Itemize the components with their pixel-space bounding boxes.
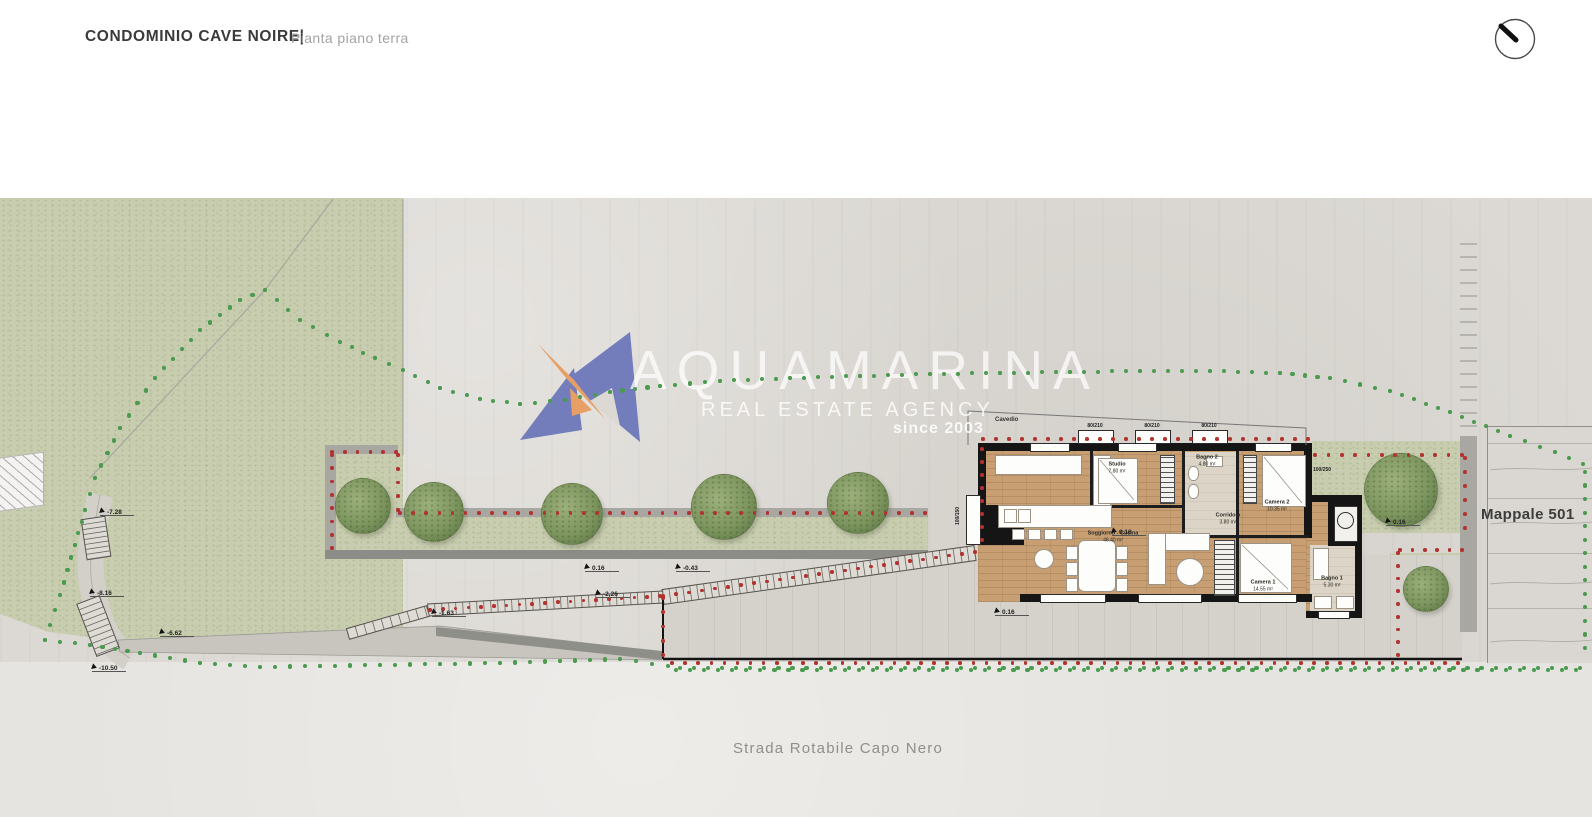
boundary-dot — [1250, 668, 1254, 672]
boundary-dot — [1380, 453, 1384, 457]
boundary-dot — [1312, 661, 1316, 665]
boundary-dot — [1560, 668, 1564, 672]
boundary-dot — [802, 376, 806, 380]
boundary-dot — [1202, 437, 1206, 441]
boundary-dot — [58, 640, 62, 644]
boundary-dot — [1411, 548, 1415, 552]
boundary-dot — [766, 511, 770, 515]
boundary-dot — [543, 659, 547, 663]
boundary-dot — [1461, 668, 1465, 672]
boundary-dot — [980, 486, 984, 490]
boundary-dot — [1583, 538, 1587, 542]
boundary-dot — [1280, 437, 1284, 441]
boundary-dot — [753, 511, 757, 515]
boundary-dot — [477, 511, 481, 515]
boundary-dot — [330, 453, 334, 457]
boundary-dot — [1508, 666, 1512, 670]
room-label: Camera 114.55 m² — [1251, 580, 1276, 593]
boundary-dot — [1111, 437, 1115, 441]
boundary-dot — [980, 473, 984, 477]
boundary-dot — [776, 666, 780, 670]
boundary-dot — [1325, 666, 1329, 670]
boundary-dot — [348, 663, 352, 667]
boundary-dot — [275, 298, 279, 302]
boundary-dot — [900, 373, 904, 377]
boundary-dot — [1479, 666, 1483, 670]
boundary-dot — [330, 506, 334, 510]
boundary-dot — [1279, 668, 1283, 672]
boundary-dot — [573, 658, 577, 662]
boundary-dot — [801, 661, 805, 665]
boundary-dot — [396, 467, 400, 471]
boundary-dot — [1463, 456, 1467, 460]
boundary-dot — [1040, 668, 1044, 672]
boundary-dot — [1447, 668, 1451, 672]
boundary-dot — [127, 413, 131, 417]
boundary-dot — [1001, 666, 1005, 670]
boundary-dot — [1475, 668, 1479, 672]
boundary-dot — [1194, 661, 1198, 665]
boundary-dot — [1536, 666, 1540, 670]
boundary-dot — [208, 320, 212, 324]
boundary-dot — [661, 653, 665, 657]
boundary-dot — [153, 653, 157, 657]
boundary-dot — [1254, 666, 1258, 670]
boundary-dot — [956, 372, 960, 376]
boundary-dot — [843, 668, 847, 672]
boundary-dot — [1463, 498, 1467, 502]
boundary-dot — [1150, 437, 1154, 441]
boundary-dot — [1299, 661, 1303, 665]
boundary-dot — [1396, 589, 1400, 593]
boundary-dot — [1082, 370, 1086, 374]
boundary-dot — [1265, 668, 1269, 672]
boundary-dot — [867, 661, 871, 665]
road-label: Strada Rotabile Capo Nero — [733, 740, 943, 757]
boundary-dot — [650, 662, 654, 666]
elevation-marker: 0.16 — [1386, 518, 1420, 526]
boundary-dot — [330, 546, 334, 550]
boundary-dot — [620, 388, 624, 392]
boundary-dot — [683, 661, 687, 665]
boundary-dot — [1110, 668, 1114, 672]
boundary-dot — [857, 668, 861, 672]
boundary-dot — [1247, 661, 1251, 665]
boundary-dot — [723, 661, 727, 665]
boundary-dot — [739, 583, 743, 587]
boundary-dot — [1443, 661, 1447, 665]
boundary-dot — [921, 558, 925, 562]
boundary-dot — [1522, 666, 1526, 670]
boundary-dot — [818, 511, 822, 515]
boundary-dot — [1456, 661, 1460, 665]
boundary-dot — [1307, 668, 1311, 672]
boundary-dot — [453, 662, 457, 666]
boundary-dot — [1564, 666, 1568, 670]
boundary-dot — [1086, 666, 1090, 670]
boundary-dot — [980, 447, 984, 451]
boundary-dot — [1378, 661, 1382, 665]
boundary-dot — [1396, 564, 1400, 568]
boundary-dot — [1518, 668, 1522, 672]
boundary-dot — [621, 511, 625, 515]
boundary-dot — [673, 383, 677, 387]
boundary-dot — [343, 450, 347, 454]
boundary-dot — [1124, 437, 1128, 441]
boundary-dot — [1460, 548, 1464, 552]
watermark-since: since 2003 — [893, 420, 984, 438]
boundary-dot — [1353, 453, 1357, 457]
boundary-dot — [1315, 375, 1319, 379]
boundary-dot — [1463, 512, 1467, 516]
boundary-dot — [858, 511, 862, 515]
boundary-dot — [923, 511, 927, 515]
boundary-dot — [468, 661, 472, 665]
boundary-dot — [1033, 437, 1037, 441]
boundary-dot — [815, 668, 819, 672]
boundary-dot — [985, 661, 989, 665]
boundary-dot — [112, 438, 116, 442]
boundary-dot — [805, 511, 809, 515]
boundary-dot — [529, 511, 533, 515]
boundary-dot — [687, 511, 691, 515]
boundary-dot — [1116, 661, 1120, 665]
boundary-dot — [381, 450, 385, 454]
window-dimension-tag: 80/210 — [1201, 423, 1216, 429]
boundary-dot — [895, 561, 899, 565]
boundary-dot — [1583, 619, 1587, 623]
boundary-dot — [804, 574, 808, 578]
boundary-dot — [65, 568, 69, 572]
boundary-dot — [330, 493, 334, 497]
boundary-dot — [593, 393, 597, 397]
boundary-dot — [543, 601, 547, 605]
boundary-dot — [972, 661, 976, 665]
boundary-dot — [980, 499, 984, 503]
boundary-dot — [843, 569, 847, 573]
boundary-dot — [1207, 661, 1211, 665]
boundary-dot — [1228, 437, 1232, 441]
elevation-marker: 0.16 — [585, 564, 619, 572]
boundary-dot — [330, 533, 334, 537]
boundary-dot — [871, 668, 875, 672]
boundary-dot — [1583, 592, 1587, 596]
boundary-dot — [1340, 453, 1344, 457]
boundary-dot — [790, 666, 794, 670]
boundary-dot — [189, 338, 193, 342]
boundary-dot — [746, 378, 750, 382]
boundary-dot — [994, 437, 998, 441]
room-label: Studio7.80 m² — [1108, 462, 1125, 475]
boundary-dot — [661, 639, 665, 643]
boundary-dot — [772, 668, 776, 672]
boundary-dot — [1358, 382, 1362, 386]
boundary-dot — [1089, 661, 1093, 665]
boundary-dot — [556, 511, 560, 515]
boundary-dot — [1046, 437, 1050, 441]
elevation-marker: -6.62 — [160, 629, 194, 637]
boundary-dot — [530, 602, 534, 606]
elevation-marker: -0.43 — [676, 564, 710, 572]
boundary-dot — [856, 567, 860, 571]
boundary-dot — [1339, 666, 1343, 670]
boundary-dot — [830, 570, 834, 574]
boundary-dot — [800, 668, 804, 672]
boundary-dot — [661, 610, 665, 614]
boundary-dot — [1012, 371, 1016, 375]
boundary-dot — [411, 511, 415, 515]
boundary-dot — [1098, 437, 1102, 441]
boundary-dot — [369, 450, 373, 454]
boundary-dot — [1365, 661, 1369, 665]
boundary-dot — [62, 580, 66, 584]
boundary-dot — [1007, 437, 1011, 441]
boundary-dot — [396, 481, 400, 485]
boundary-dot — [906, 661, 910, 665]
boundary-dot — [228, 305, 232, 309]
boundary-dot — [503, 511, 507, 515]
boundary-dot — [183, 658, 187, 662]
boundary-dot — [1037, 661, 1041, 665]
boundary-dot — [700, 511, 704, 515]
boundary-dot — [1082, 668, 1086, 672]
boundary-dot — [1583, 632, 1587, 636]
boundary-dot — [438, 511, 442, 515]
boundary-dot — [1100, 666, 1104, 670]
boundary-dot — [792, 511, 796, 515]
boundary-dot — [1269, 666, 1273, 670]
boundary-dot — [645, 595, 649, 599]
boundary-dot — [841, 661, 845, 665]
boundary-dot — [426, 380, 430, 384]
boundary-dot — [1025, 668, 1029, 672]
boundary-dot — [125, 649, 129, 653]
boundary-dot — [819, 666, 823, 670]
boundary-dot — [1222, 668, 1226, 672]
boundary-dot — [603, 657, 607, 661]
boundary-dot — [393, 663, 397, 667]
boundary-dot — [670, 661, 674, 665]
boundary-dot — [479, 605, 483, 609]
boundary-dot — [1550, 666, 1554, 670]
shaft-label: Cavedio — [995, 417, 1018, 423]
boundary-dot — [1351, 661, 1355, 665]
boundary-dot — [910, 511, 914, 515]
boundary-dot — [1234, 661, 1238, 665]
boundary-dot — [1367, 453, 1371, 457]
boundary-dot — [1338, 661, 1342, 665]
boundary-dot — [1306, 437, 1310, 441]
boundary-dot — [99, 463, 103, 467]
boundary-dot — [396, 494, 400, 498]
boundary-dot — [1327, 453, 1331, 457]
boundary-dot — [1068, 668, 1072, 672]
boundary-dot — [688, 381, 692, 385]
boundary-dot — [634, 511, 638, 515]
boundary-dot — [1103, 661, 1107, 665]
boundary-dot — [981, 437, 985, 441]
boundary-dot — [788, 661, 792, 665]
boundary-dot — [1451, 666, 1455, 670]
boundary-dot — [451, 511, 455, 515]
boundary-dot — [1396, 628, 1400, 632]
boundary-dot — [330, 466, 334, 470]
boundary-dot — [1546, 668, 1550, 672]
boundary-dot — [648, 511, 652, 515]
boundary-dot — [1321, 668, 1325, 672]
boundary-dot — [739, 511, 743, 515]
boundary-dot — [582, 511, 586, 515]
boundary-dot — [817, 572, 821, 576]
boundary-dot — [1226, 666, 1230, 670]
boundary-dot — [1423, 548, 1427, 552]
boundary-dot — [1054, 668, 1058, 672]
boundary-dot — [829, 668, 833, 672]
boundary-dot — [1129, 661, 1133, 665]
window-dimension-tag: 100/150 — [955, 507, 961, 525]
boundary-dot — [645, 385, 649, 389]
window-dimension-tag: 100/250 — [1313, 467, 1331, 473]
boundary-dot — [1311, 666, 1315, 670]
elevation-marker: -2.26 — [596, 590, 630, 598]
boundary-dot — [1424, 402, 1428, 406]
boundary-dot — [1373, 386, 1377, 390]
elevation-marker: -7.28 — [100, 508, 134, 516]
boundary-dot — [765, 580, 769, 584]
boundary-dot — [696, 661, 700, 665]
boundary-dot — [661, 625, 665, 629]
boundary-dot — [1254, 437, 1258, 441]
boundary-dot — [980, 538, 984, 542]
boundary-dot — [713, 511, 717, 515]
boundary-dot — [1538, 445, 1542, 449]
boundary-dot — [908, 559, 912, 563]
boundary-dot — [543, 511, 547, 515]
boundary-dot — [1181, 661, 1185, 665]
room-label: Bagno 15.30 m² — [1321, 576, 1343, 589]
window-dimension-tag: 80/210 — [1087, 423, 1102, 429]
elevation-marker: 0.16 — [995, 608, 1029, 616]
boundary-dot — [608, 511, 612, 515]
boundary-dot — [726, 511, 730, 515]
boundary-dot — [778, 578, 782, 582]
boundary-dot — [1163, 437, 1167, 441]
boundary-dot — [1015, 666, 1019, 670]
boundary-dot — [1293, 437, 1297, 441]
boundary-dot — [804, 666, 808, 670]
boundary-dot — [1076, 661, 1080, 665]
boundary-dot — [973, 550, 977, 554]
boundary-dot — [1240, 666, 1244, 670]
boundary-dot — [273, 665, 277, 669]
elevation-marker: -10.50 — [92, 664, 126, 672]
boundary-dot — [1137, 437, 1141, 441]
boundary-dot — [1435, 548, 1439, 552]
boundary-dot — [1059, 437, 1063, 441]
boundary-dot — [885, 668, 889, 672]
boundary-dot — [674, 592, 678, 596]
boundary-dot — [1072, 437, 1076, 441]
boundary-dot — [1044, 666, 1048, 670]
boundary-dot — [144, 388, 148, 392]
boundary-dot — [854, 661, 858, 665]
floor-plan-sheet: CONDOMINIO CAVE NOIRE| Pianta piano terr… — [0, 0, 1592, 817]
boundary-dot — [1011, 668, 1015, 672]
boundary-dot — [889, 666, 893, 670]
boundary-dot — [861, 666, 865, 670]
boundary-dot — [1490, 668, 1494, 672]
boundary-dot — [1396, 640, 1400, 644]
boundary-dot — [1433, 453, 1437, 457]
boundary-dot — [1504, 668, 1508, 672]
boundary-dot — [710, 661, 714, 665]
boundary-dot — [958, 661, 962, 665]
boundary-dot — [932, 661, 936, 665]
boundary-dot — [875, 666, 879, 670]
watermark-tagline: REAL ESTATE AGENCY — [701, 399, 994, 422]
boundary-dot — [1325, 661, 1329, 665]
boundary-dot — [942, 372, 946, 376]
room-label: Bagno 24.80 m² — [1196, 455, 1218, 468]
boundary-dot — [980, 525, 984, 529]
boundary-dot — [556, 600, 560, 604]
tree — [691, 474, 757, 540]
boundary-dot — [80, 520, 84, 524]
boundary-dot — [775, 661, 779, 665]
boundary-dot — [1058, 666, 1062, 670]
boundary-dot — [424, 511, 428, 515]
boundary-dot — [1020, 437, 1024, 441]
boundary-dot — [1463, 484, 1467, 488]
boundary-dot — [1029, 666, 1033, 670]
boundary-dot — [1335, 668, 1339, 672]
boundary-dot — [833, 666, 837, 670]
boundary-dot — [1267, 437, 1271, 441]
boundary-dot — [1050, 661, 1054, 665]
boundary-dot — [1396, 551, 1400, 555]
boundary-dot — [997, 668, 1001, 672]
boundary-dot — [998, 661, 1002, 665]
boundary-dot — [1396, 615, 1400, 619]
watermark-brand: AQUAMARINA — [630, 338, 1100, 402]
boundary-dot — [980, 512, 984, 516]
boundary-dot — [1283, 666, 1287, 670]
tree — [335, 478, 391, 534]
boundary-dot — [100, 645, 104, 649]
boundary-dot — [700, 589, 704, 593]
elevation-marker: 0.16 — [1112, 528, 1146, 536]
boundary-dot — [408, 662, 412, 666]
boundary-dot — [1114, 666, 1118, 670]
boundary-dot — [1313, 453, 1317, 457]
boundary-dot — [1430, 661, 1434, 665]
boundary-dot — [945, 661, 949, 665]
boundary-dot — [1297, 666, 1301, 670]
boundary-dot — [1407, 453, 1411, 457]
boundary-dot — [1465, 666, 1469, 670]
boundary-dot — [171, 357, 175, 361]
boundary-dot — [69, 555, 73, 559]
boundary-dot — [1583, 511, 1587, 515]
boundary-dot — [1236, 668, 1240, 672]
boundary-dot — [871, 511, 875, 515]
boundary-dot — [827, 661, 831, 665]
boundary-dot — [333, 664, 337, 668]
boundary-dot — [1290, 372, 1294, 376]
boundary-dot — [687, 591, 691, 595]
boundary-dot — [594, 598, 598, 602]
boundary-dot — [1168, 661, 1172, 665]
